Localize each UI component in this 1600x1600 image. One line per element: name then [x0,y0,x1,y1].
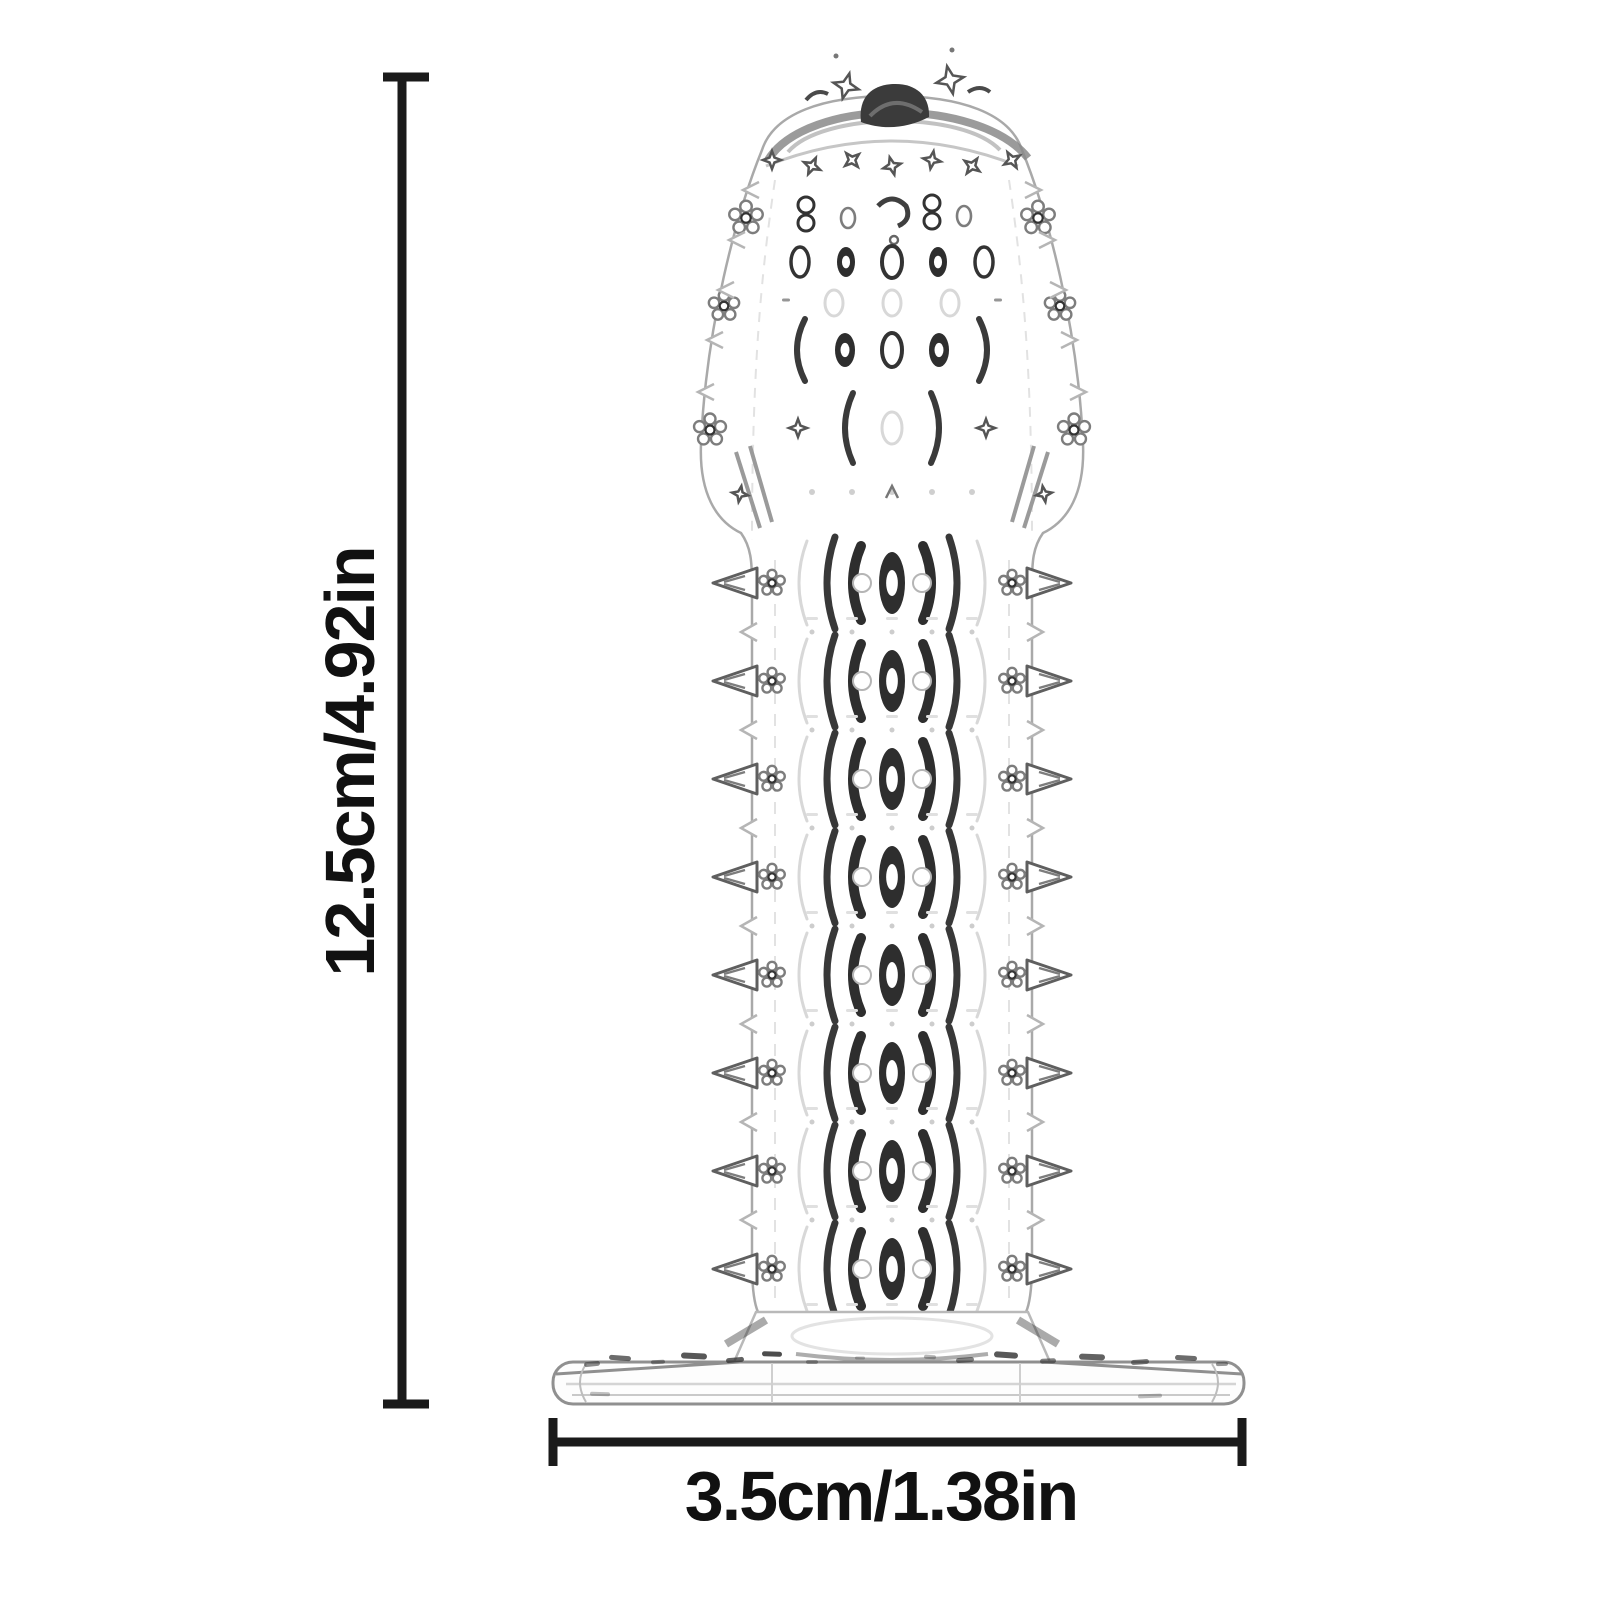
width-dimension-label: 3.5cm/1.38in [631,1451,1131,1541]
textured-sleeve-illustration [553,48,1244,1405]
diagram-artwork [0,0,1600,1600]
product-dimension-diagram: 12.5cm/4.92in 3.5cm/1.38in [0,0,1600,1600]
dimension-lines [383,77,1242,1466]
height-dimension-label: 12.5cm/4.92in [305,512,395,1012]
